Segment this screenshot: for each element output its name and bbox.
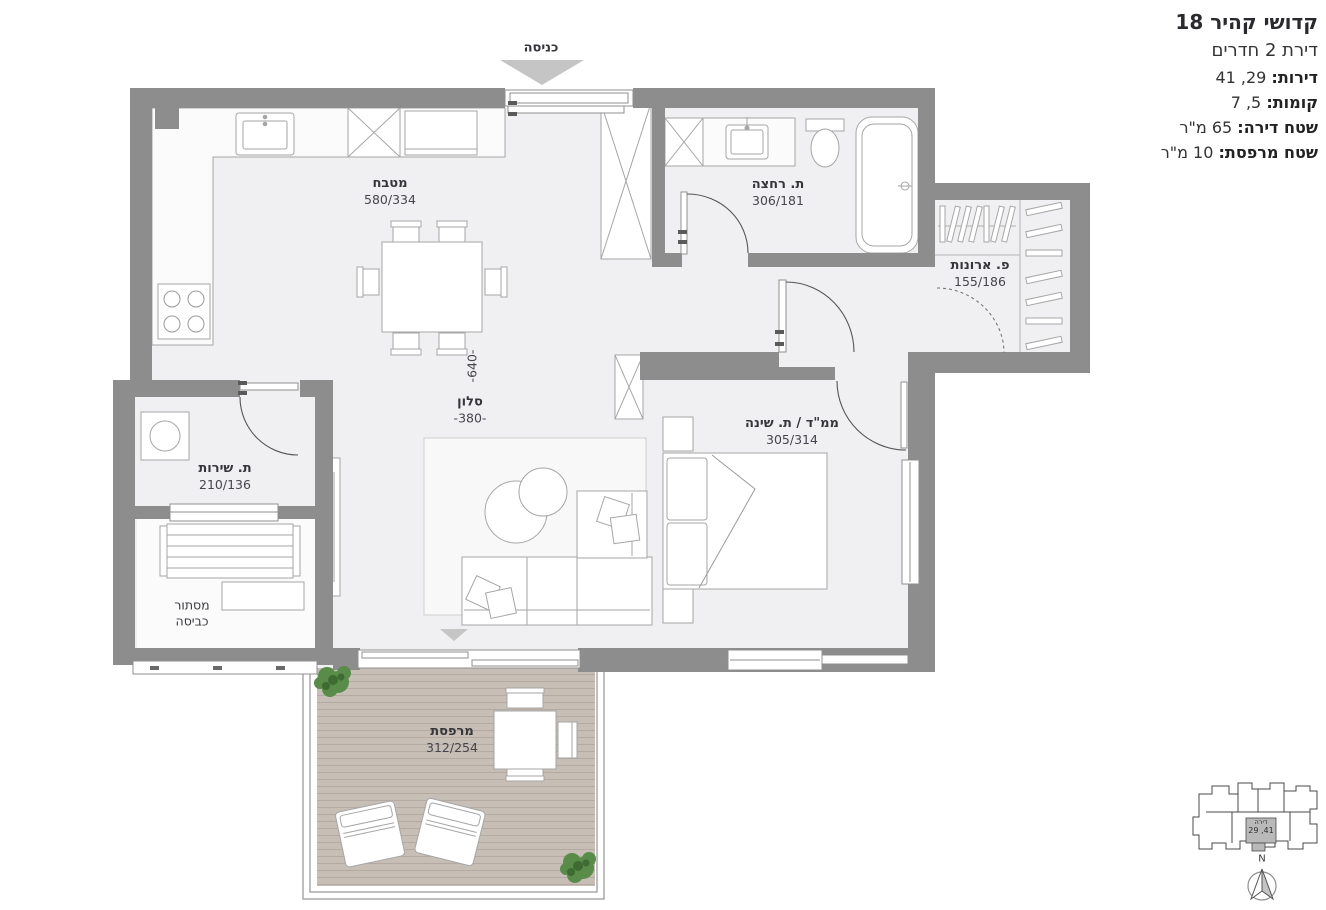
- entry-wardrobe-icon: [601, 103, 651, 259]
- kitchen-sink-icon: [236, 113, 294, 155]
- apartment-area-field: שטח דירה: 65 מ"ר: [1161, 118, 1318, 137]
- key-plan-building: [1193, 783, 1317, 851]
- fridge-icon: [405, 111, 477, 155]
- bathroom-door-leaf: [681, 192, 687, 254]
- bathroom-cabinet-icon: [665, 118, 703, 166]
- apartments-field: דירות: 29, 41: [1161, 68, 1318, 87]
- bedroom-window-right: [902, 460, 919, 584]
- key-plan-unit-label: דירה 41, 29: [1245, 819, 1277, 836]
- bedroom-label: ממ"ד / ת. שינה 305/314: [745, 416, 839, 448]
- living-width-dim: -380-: [454, 411, 487, 426]
- living-label: סלון: [457, 395, 483, 410]
- balcony-sliding-door: [358, 650, 580, 668]
- lounge-chair-right: [414, 798, 486, 867]
- mamad-door-leaf: [779, 280, 786, 352]
- lounge-chair-left: [335, 800, 405, 867]
- washing-machine-icon: [141, 412, 189, 460]
- laundry-louver: [133, 661, 317, 674]
- bedroom-window-bottom: [728, 650, 822, 670]
- entrance-door: [505, 90, 633, 116]
- bathtub-icon: [856, 117, 918, 253]
- closets-label: פ. ארונות 155/186: [950, 258, 1009, 290]
- kitchen-label: מטבח 580/334: [364, 176, 416, 208]
- bathroom-label: ת. רחצה 306/181: [752, 177, 805, 209]
- north-compass-icon: [1248, 869, 1276, 900]
- entrance-arrow-icon: [500, 60, 584, 85]
- info-panel: קדושי קהיר 18 דירת 2 חדרים דירות: 29, 41…: [1161, 10, 1318, 168]
- project-title: קדושי קהיר 18: [1161, 10, 1318, 34]
- closet-column-icon: [615, 355, 643, 419]
- stove-icon: [158, 284, 210, 339]
- apartment-type: דירת 2 חדרים: [1161, 40, 1318, 61]
- north-letter: N: [1258, 854, 1265, 865]
- balcony-table: [494, 688, 577, 781]
- service-door-leaf: [240, 383, 298, 390]
- bedroom-door-leaf: [901, 382, 907, 448]
- entrance-label: כניסה: [524, 41, 559, 56]
- service-window: [170, 504, 278, 521]
- floor-plan-page: קדושי קהיר 18 דירת 2 חדרים דירות: 29, 41…: [0, 0, 1326, 910]
- service-room-label: ת. שירות 210/136: [198, 461, 251, 493]
- laundry-label: מסתור כביסה: [174, 597, 209, 628]
- living-depth-dim: -640-: [465, 350, 480, 383]
- shutter-rail: [822, 655, 908, 664]
- plant-icon-bottom: [560, 852, 596, 883]
- dishwasher-icon: [348, 108, 400, 157]
- floor-plan-drawing: [0, 0, 1326, 910]
- balcony-label: מרפסת 312/254: [426, 724, 478, 756]
- balcony-area-field: שטח מרפסת: 10 מ"ר: [1161, 143, 1318, 162]
- floors-field: קומות: 5, 7: [1161, 93, 1318, 112]
- plant-icon-top: [314, 666, 351, 697]
